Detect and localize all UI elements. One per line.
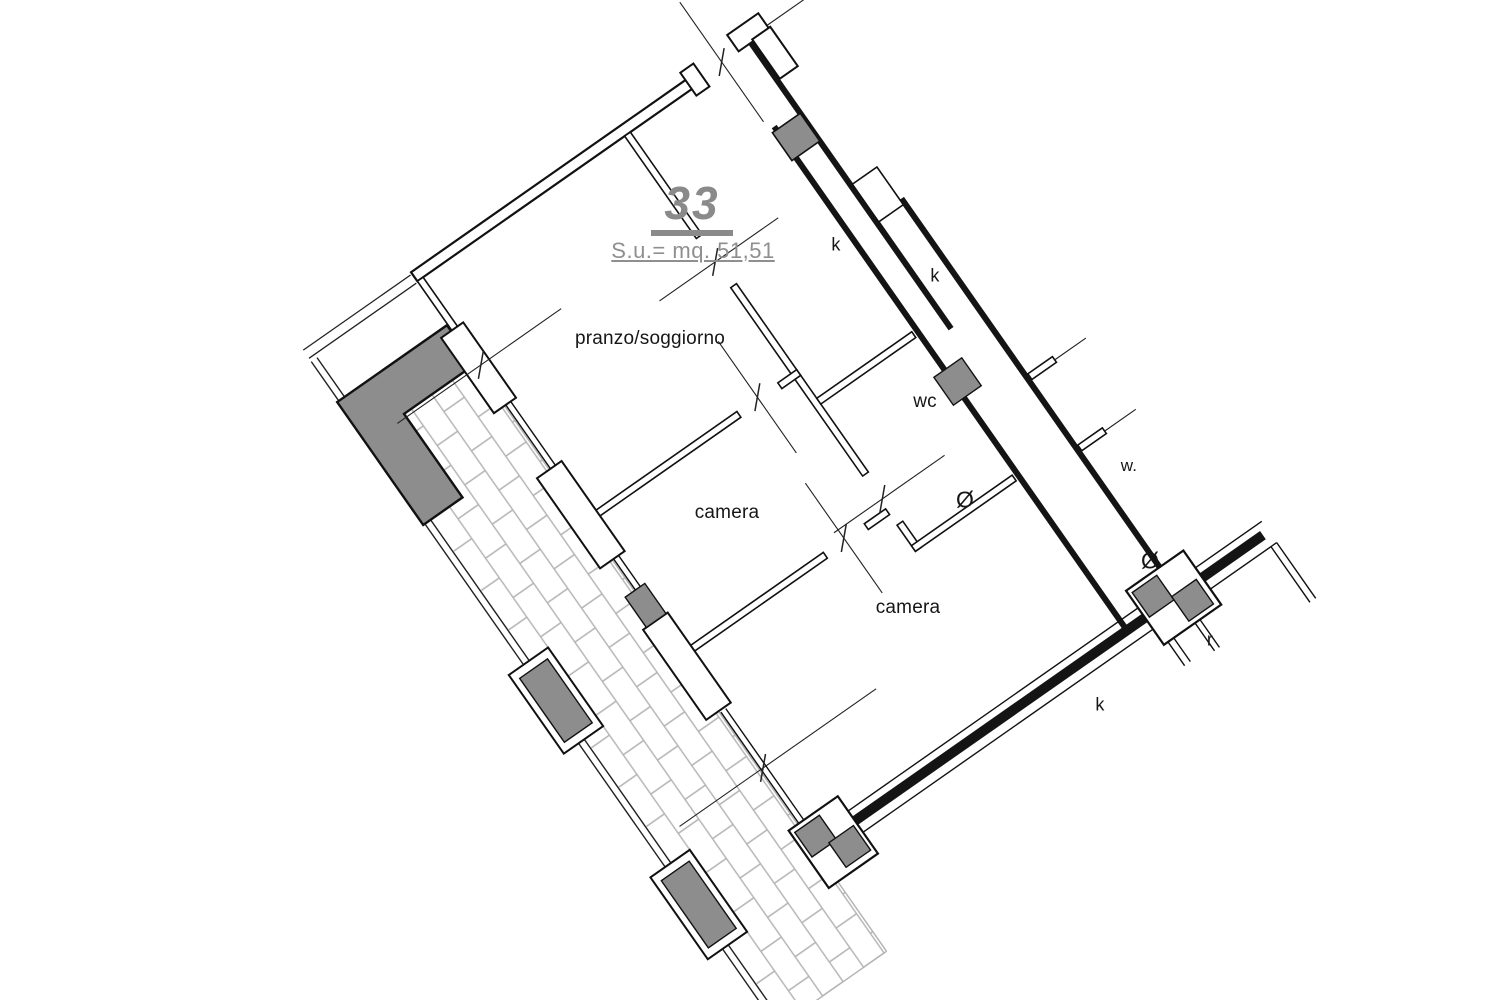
wall-stub-1 bbox=[1028, 357, 1057, 380]
area-label: S.u.= mq. 51,51 bbox=[611, 238, 774, 264]
left-wall-top bbox=[417, 277, 457, 330]
unit-number: 33 bbox=[664, 176, 719, 230]
wc-top-wall bbox=[817, 332, 916, 404]
party-wall-lines bbox=[845, 521, 1316, 890]
vent-symbol-wc: Ø bbox=[956, 487, 974, 514]
vent-symbol-corridor: Ø bbox=[1141, 548, 1159, 575]
room-label-living: pranzo/soggiorno bbox=[575, 328, 725, 350]
room-label-bedroom2: camera bbox=[876, 597, 941, 619]
entry-pillar bbox=[772, 113, 819, 160]
floor-plan-sheet: 33 S.u.= mq. 51,51 pranzo/soggiorno came… bbox=[0, 0, 1500, 1000]
right-wall-b bbox=[746, 37, 954, 330]
wall-stub-2 bbox=[1078, 428, 1107, 451]
annotation-w: w. bbox=[1121, 456, 1137, 476]
room-label-wc: wc bbox=[913, 391, 937, 413]
annotation-k-top: k bbox=[831, 235, 840, 256]
divider-bedroom1-bedroom2-r bbox=[864, 509, 889, 530]
annotation-r: r bbox=[1207, 630, 1213, 651]
floor-plan-drawing bbox=[0, 0, 1500, 1000]
entrance bbox=[678, 12, 840, 184]
exterior-walls bbox=[411, 0, 1280, 873]
rotated-plan-group bbox=[249, 0, 1340, 1000]
hall-partition-lower bbox=[731, 284, 801, 380]
annotation-k-mid: k bbox=[930, 266, 939, 287]
shaft-niche bbox=[852, 167, 903, 222]
room-label-bedroom1: camera bbox=[695, 502, 760, 524]
divider-bedroom1-bedroom2-l bbox=[686, 552, 828, 654]
unit-number-underline bbox=[651, 230, 733, 236]
party-line-top bbox=[303, 275, 416, 358]
balcony-floor-hatch bbox=[345, 325, 886, 1000]
annotation-k-bottom: k bbox=[1095, 695, 1104, 716]
